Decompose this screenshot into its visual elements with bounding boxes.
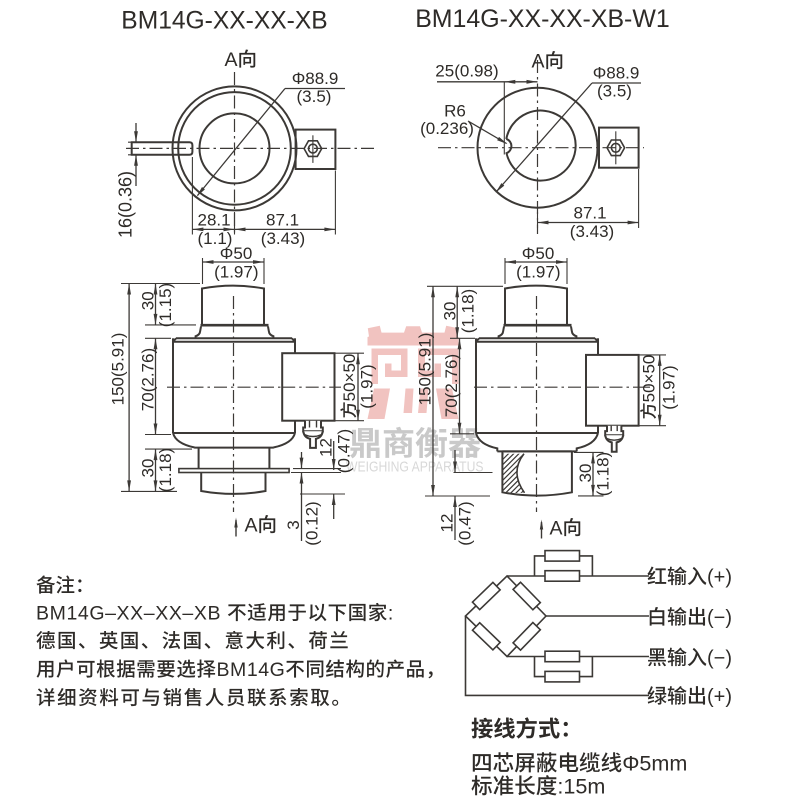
svg-text:BM14G–XX–XX–XB: BM14G–XX–XX–XB [36, 603, 221, 625]
svg-text:(1.97): (1.97) [214, 263, 258, 282]
svg-text:(+): (+) [707, 567, 732, 589]
svg-text:R6: R6 [444, 102, 466, 121]
svg-text:(−): (−) [707, 607, 732, 629]
svg-text:30: 30 [576, 464, 595, 483]
svg-text:BM14G-XX-XX-XB-W1: BM14G-XX-XX-XB-W1 [415, 5, 670, 33]
svg-text:Φ5mm: Φ5mm [622, 751, 687, 776]
svg-text:(3.43): (3.43) [261, 229, 305, 248]
svg-text:(+): (+) [707, 686, 732, 708]
svg-text:(0.12): (0.12) [303, 501, 322, 545]
svg-text:(1.18): (1.18) [459, 289, 478, 333]
svg-text:(1.97): (1.97) [660, 365, 679, 409]
svg-text:12: 12 [438, 514, 457, 533]
svg-text:(0.47): (0.47) [335, 429, 354, 473]
svg-text:(−): (−) [707, 648, 732, 670]
svg-text:Φ88.9: Φ88.9 [292, 69, 339, 88]
svg-text:87.1: 87.1 [574, 204, 607, 223]
svg-text:70(2.76): 70(2.76) [442, 354, 461, 417]
svg-text:(0.47): (0.47) [456, 501, 475, 545]
svg-text:(0.236): (0.236) [420, 119, 474, 138]
svg-text:30: 30 [139, 291, 158, 310]
svg-text:50×50: 50×50 [340, 354, 359, 402]
svg-text:A: A [225, 49, 238, 71]
svg-text:Φ88.9: Φ88.9 [593, 64, 640, 83]
svg-text::15m: :15m [557, 774, 605, 799]
svg-text:Φ50: Φ50 [522, 244, 554, 263]
svg-text:30: 30 [139, 459, 158, 478]
svg-text:(3.5): (3.5) [297, 87, 332, 106]
svg-text:(1.18): (1.18) [594, 452, 613, 496]
svg-text:A: A [245, 515, 258, 537]
svg-text:(1.97): (1.97) [516, 263, 560, 282]
svg-text:Φ50: Φ50 [220, 244, 252, 263]
svg-text:(1.15): (1.15) [156, 283, 175, 327]
svg-text:87.1: 87.1 [266, 211, 299, 230]
svg-text:BM14G: BM14G [217, 659, 286, 681]
svg-text:25(0.98): 25(0.98) [435, 62, 498, 81]
svg-text:70(2.76): 70(2.76) [139, 348, 158, 411]
svg-text:(3.43): (3.43) [570, 222, 614, 241]
svg-text:150(5.91): 150(5.91) [416, 333, 435, 406]
svg-text::: : [388, 603, 394, 625]
svg-text:12: 12 [317, 438, 336, 457]
svg-text:(1.18): (1.18) [156, 448, 175, 492]
svg-text:50×50: 50×50 [640, 355, 659, 403]
svg-text:16(0.36): 16(0.36) [116, 171, 136, 238]
svg-text:(3.5): (3.5) [597, 82, 632, 101]
svg-text:(1.97): (1.97) [358, 364, 377, 408]
svg-text:A: A [550, 518, 563, 540]
svg-text:150(5.91): 150(5.91) [109, 333, 128, 406]
svg-text:28.1: 28.1 [198, 211, 231, 230]
svg-text:3: 3 [284, 520, 303, 529]
svg-text:BM14G-XX-XX-XB: BM14G-XX-XX-XB [121, 8, 327, 35]
svg-text:30: 30 [441, 302, 460, 321]
